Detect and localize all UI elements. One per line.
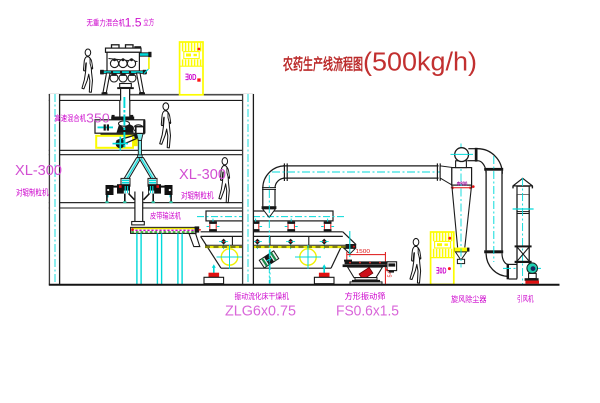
svg-text:对辊制粒机: 对辊制粒机 xyxy=(16,188,49,198)
svg-text:1.5: 1.5 xyxy=(125,18,142,30)
svg-text:XL-300: XL-300 xyxy=(179,167,226,183)
svg-text:对辊制粒机: 对辊制粒机 xyxy=(181,190,214,200)
svg-text:农药生产线流程图: 农药生产线流程图 xyxy=(282,56,363,74)
svg-text:FS0.6x1.5: FS0.6x1.5 xyxy=(336,303,399,319)
svg-text:(500kg/h): (500kg/h) xyxy=(363,49,477,77)
svg-text:XL-300: XL-300 xyxy=(15,163,62,179)
svg-text:Φ800: Φ800 xyxy=(457,181,468,187)
svg-text:高速混合机: 高速混合机 xyxy=(55,113,87,123)
svg-text:无重力混合机: 无重力混合机 xyxy=(87,18,126,28)
svg-text:∃0D: ∃0D xyxy=(185,72,197,82)
svg-text:引风机: 引风机 xyxy=(517,293,534,303)
svg-text:皮带输送机: 皮带输送机 xyxy=(150,211,181,221)
svg-text:旋风除尘器: 旋风除尘器 xyxy=(451,294,487,304)
svg-text:∃0D: ∃0D xyxy=(436,266,447,276)
svg-text:立方: 立方 xyxy=(143,17,154,27)
svg-text:1500: 1500 xyxy=(356,249,371,255)
svg-text:350: 350 xyxy=(86,110,110,125)
svg-text:ZLG6x0.75: ZLG6x0.75 xyxy=(225,303,296,319)
svg-text:振动流化床干燥机: 振动流化床干燥机 xyxy=(235,291,290,301)
svg-text:方形振动筛: 方形振动筛 xyxy=(345,291,386,301)
